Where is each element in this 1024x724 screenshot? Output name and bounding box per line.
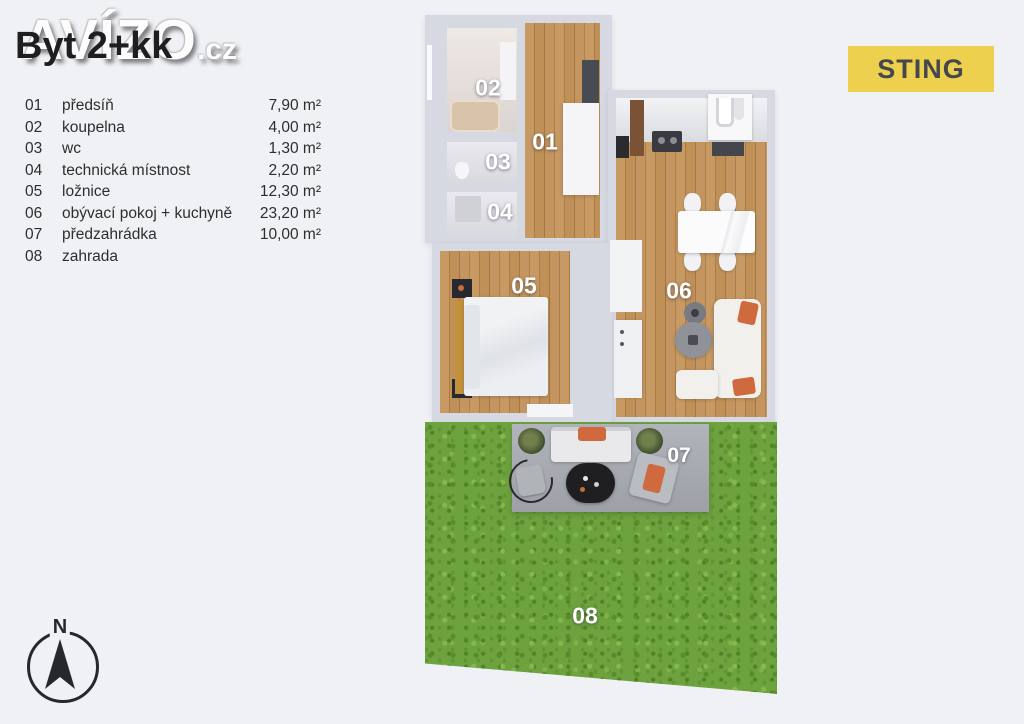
legend-row: 06 obývací pokoj + kuchyně 23,20 m² [25, 205, 321, 227]
washing-machine [455, 196, 481, 222]
legend-room-name: ložnice [62, 183, 243, 201]
room-label-02: 02 [475, 75, 501, 102]
room-label-06: 06 [666, 278, 692, 305]
room-label-08: 08 [572, 603, 598, 630]
legend-row: 07 předzahrádka 10,00 m² [25, 226, 321, 248]
sofa-chaise [676, 370, 718, 399]
legend-room-number: 01 [25, 97, 62, 115]
legend-room-area: 4,00 m² [243, 119, 321, 137]
legend-room-name: zahrada [62, 248, 243, 266]
bed-bench [455, 300, 464, 394]
sting-badge: STING [848, 46, 994, 92]
room-label-03: 03 [485, 149, 511, 176]
sofa-cushion [732, 377, 756, 397]
legend-room-name: obývací pokoj + kuchyně [62, 205, 243, 223]
legend-room-area: 10,00 m² [243, 226, 321, 244]
room-legend: 01 předsíň 7,90 m² 02 koupelna 4,00 m² 0… [25, 97, 321, 269]
legend-room-number: 04 [25, 162, 62, 180]
bedroom-dresser [527, 404, 573, 417]
legend-row: 01 předsíň 7,90 m² [25, 97, 321, 119]
outdoor-chair [515, 464, 547, 497]
cooktop [652, 131, 682, 152]
bathroom-vanity [500, 42, 516, 100]
legend-room-area: 1,30 m² [243, 140, 321, 158]
legend-room-area: 23,20 m² [243, 205, 321, 223]
legend-room-name: koupelna [62, 119, 243, 137]
kitchen-appliance [712, 142, 744, 156]
builtin-cabinet [610, 240, 642, 312]
nightstand-decor [458, 285, 464, 291]
room-label-05: 05 [511, 273, 537, 300]
avizo-watermark-suffix: .cz [197, 33, 237, 66]
legend-row: 04 technická místnost 2,20 m² [25, 162, 321, 184]
potted-plant [636, 428, 663, 454]
cooktop-burner [658, 137, 665, 144]
legend-room-number: 02 [25, 119, 62, 137]
compass-icon: N [24, 615, 102, 699]
north-arrow-icon [27, 635, 93, 695]
legend-row: 08 zahrada [25, 248, 321, 270]
toilet [455, 162, 469, 179]
room-label-04: 04 [487, 199, 513, 226]
sink-drainer [734, 98, 744, 120]
legend-room-name: předzahrádka [62, 226, 243, 244]
table-decor-dot [594, 482, 599, 487]
legend-row: 03 wc 1,30 m² [25, 140, 321, 162]
room-label-01: 01 [532, 129, 558, 156]
page-title: Byt 2+kk [15, 24, 172, 70]
outdoor-table [566, 463, 615, 503]
bed-pillows [464, 305, 480, 389]
legend-room-name: wc [62, 140, 243, 158]
kitchen-wood-cabinet [630, 100, 644, 156]
door-handle-dot [620, 342, 624, 346]
bathroom-window [427, 45, 432, 100]
hallway-closet-panel [582, 60, 599, 103]
potted-plant [518, 428, 545, 454]
legend-room-number: 07 [25, 226, 62, 244]
cooktop-burner [670, 137, 677, 144]
legend-row: 02 koupelna 4,00 m² [25, 119, 321, 141]
table-decor-dot [580, 487, 585, 492]
legend-room-number: 05 [25, 183, 62, 201]
coffee-table-small-center [691, 309, 699, 317]
door-handle-dot [620, 330, 624, 334]
legend-room-area: 2,20 m² [243, 162, 321, 180]
legend-room-number: 08 [25, 248, 62, 266]
legend-room-number: 03 [25, 140, 62, 158]
builtin-door [614, 320, 642, 398]
legend-room-number: 06 [25, 205, 62, 223]
table-decor-dot [583, 476, 588, 481]
hallway-wardrobe [563, 103, 599, 195]
coffee-table-tray [688, 335, 698, 345]
room-label-07: 07 [667, 444, 690, 468]
dining-table [678, 211, 755, 253]
legend-room-area: 12,30 m² [243, 183, 321, 201]
kitchen-oven [616, 136, 629, 158]
north-label: N [50, 617, 70, 637]
legend-row: 05 ložnice 12,30 m² [25, 183, 321, 205]
legend-room-name: technická místnost [62, 162, 243, 180]
sink-basin [716, 98, 734, 127]
outdoor-sofa-cushion [578, 427, 606, 441]
legend-room-area: 7,90 m² [243, 97, 321, 115]
dining-chair [684, 250, 701, 271]
dining-chair [719, 250, 736, 271]
bathtub [450, 100, 500, 132]
legend-room-name: předsíň [62, 97, 243, 115]
